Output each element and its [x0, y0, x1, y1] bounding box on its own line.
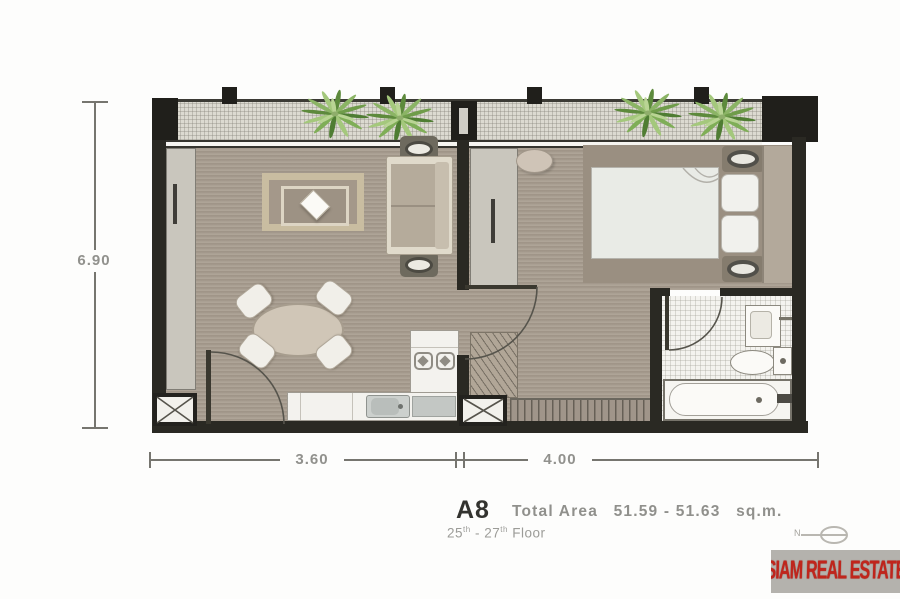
bathtub-basin	[669, 383, 779, 416]
tub-faucet	[777, 394, 792, 403]
dimension-cap	[817, 452, 819, 468]
counter-divider	[411, 347, 458, 348]
living-room-closet	[166, 148, 196, 390]
bathroom-left-wall	[650, 288, 662, 423]
sink-basin	[371, 398, 399, 415]
bathroom-top-wall	[650, 288, 670, 296]
sofa-seat-divider	[391, 205, 437, 207]
horizontal-dimension-line	[150, 459, 818, 461]
partition-wall-upper	[457, 140, 469, 290]
table-lamp	[405, 141, 433, 157]
dimension-cap	[463, 452, 465, 468]
balcony-divider-slot	[457, 106, 470, 136]
drying-rack	[412, 396, 456, 417]
area-unit: sq.m.	[736, 503, 782, 520]
basin-faucet	[779, 317, 792, 320]
floor-to: 27	[484, 526, 500, 541]
balcony-end-wall-left	[152, 98, 178, 140]
dimension-cap	[82, 101, 108, 103]
bathroom-top-wall	[720, 288, 792, 296]
shaft-box	[459, 395, 507, 426]
closet-handle	[173, 184, 177, 224]
cabinet-divider	[352, 393, 353, 420]
floor-dash: -	[475, 526, 480, 541]
width-right-dimension-label: 4.00	[528, 449, 592, 471]
wall-stub	[222, 87, 237, 104]
bathroom-door-leaf	[665, 296, 669, 350]
headboard	[762, 146, 792, 283]
right-wall	[792, 137, 806, 431]
sofa-back-cushion	[435, 162, 449, 249]
plant-icon	[684, 88, 760, 146]
total-area-text: Total Area 51.59 - 51.63 sq.m.	[512, 503, 783, 521]
reading-lamp	[727, 260, 759, 278]
dimension-cap	[82, 427, 108, 429]
ordinal: th	[500, 525, 508, 534]
balcony-end-wall-right	[762, 96, 818, 142]
floor-plan-image: 6.90 3.60 4.00 A8 Total Area 51.59 - 51.…	[0, 0, 900, 599]
width-left-dimension-label: 3.60	[280, 449, 344, 471]
left-wall	[152, 140, 166, 431]
floor-word: Floor	[512, 526, 545, 541]
toilet-bowl	[730, 350, 775, 375]
shaft-box	[153, 393, 197, 426]
dimension-cap	[149, 452, 151, 468]
north-label: N	[794, 528, 801, 538]
height-dimension-label: 6.90	[62, 250, 126, 272]
pillow	[721, 215, 759, 253]
watermark-text: SIAM REAL ESTATE	[771, 557, 900, 587]
built-in-wardrobe	[510, 398, 655, 421]
unit-label: A8	[456, 496, 490, 525]
bedroom-door-leaf	[465, 285, 537, 289]
washbasin-bowl	[750, 311, 772, 339]
dimension-cap	[455, 452, 457, 468]
wall-stub	[527, 87, 542, 104]
ottoman	[516, 149, 553, 173]
ordinal: th	[463, 525, 471, 534]
tub-drain	[756, 397, 762, 403]
corridor-closet	[470, 332, 518, 398]
sink-faucet	[398, 404, 403, 409]
floor-from: 25	[447, 526, 463, 541]
table-lamp	[405, 257, 433, 273]
plant-icon	[610, 84, 686, 142]
floor-range-text: 25th - 27th Floor	[447, 525, 545, 541]
bed-duvet	[591, 167, 719, 259]
watermark: SIAM REAL ESTATE	[771, 550, 900, 593]
toilet-flush-button	[780, 358, 786, 364]
area-label: Total Area	[512, 503, 598, 520]
wardrobe-handle	[491, 199, 495, 243]
cabinet-divider	[300, 393, 301, 420]
area-value: 51.59 - 51.63	[614, 503, 721, 520]
pillow	[721, 174, 759, 212]
compass-circle-icon	[820, 526, 848, 544]
reading-lamp	[727, 150, 759, 168]
entrance-door-leaf	[206, 350, 211, 424]
